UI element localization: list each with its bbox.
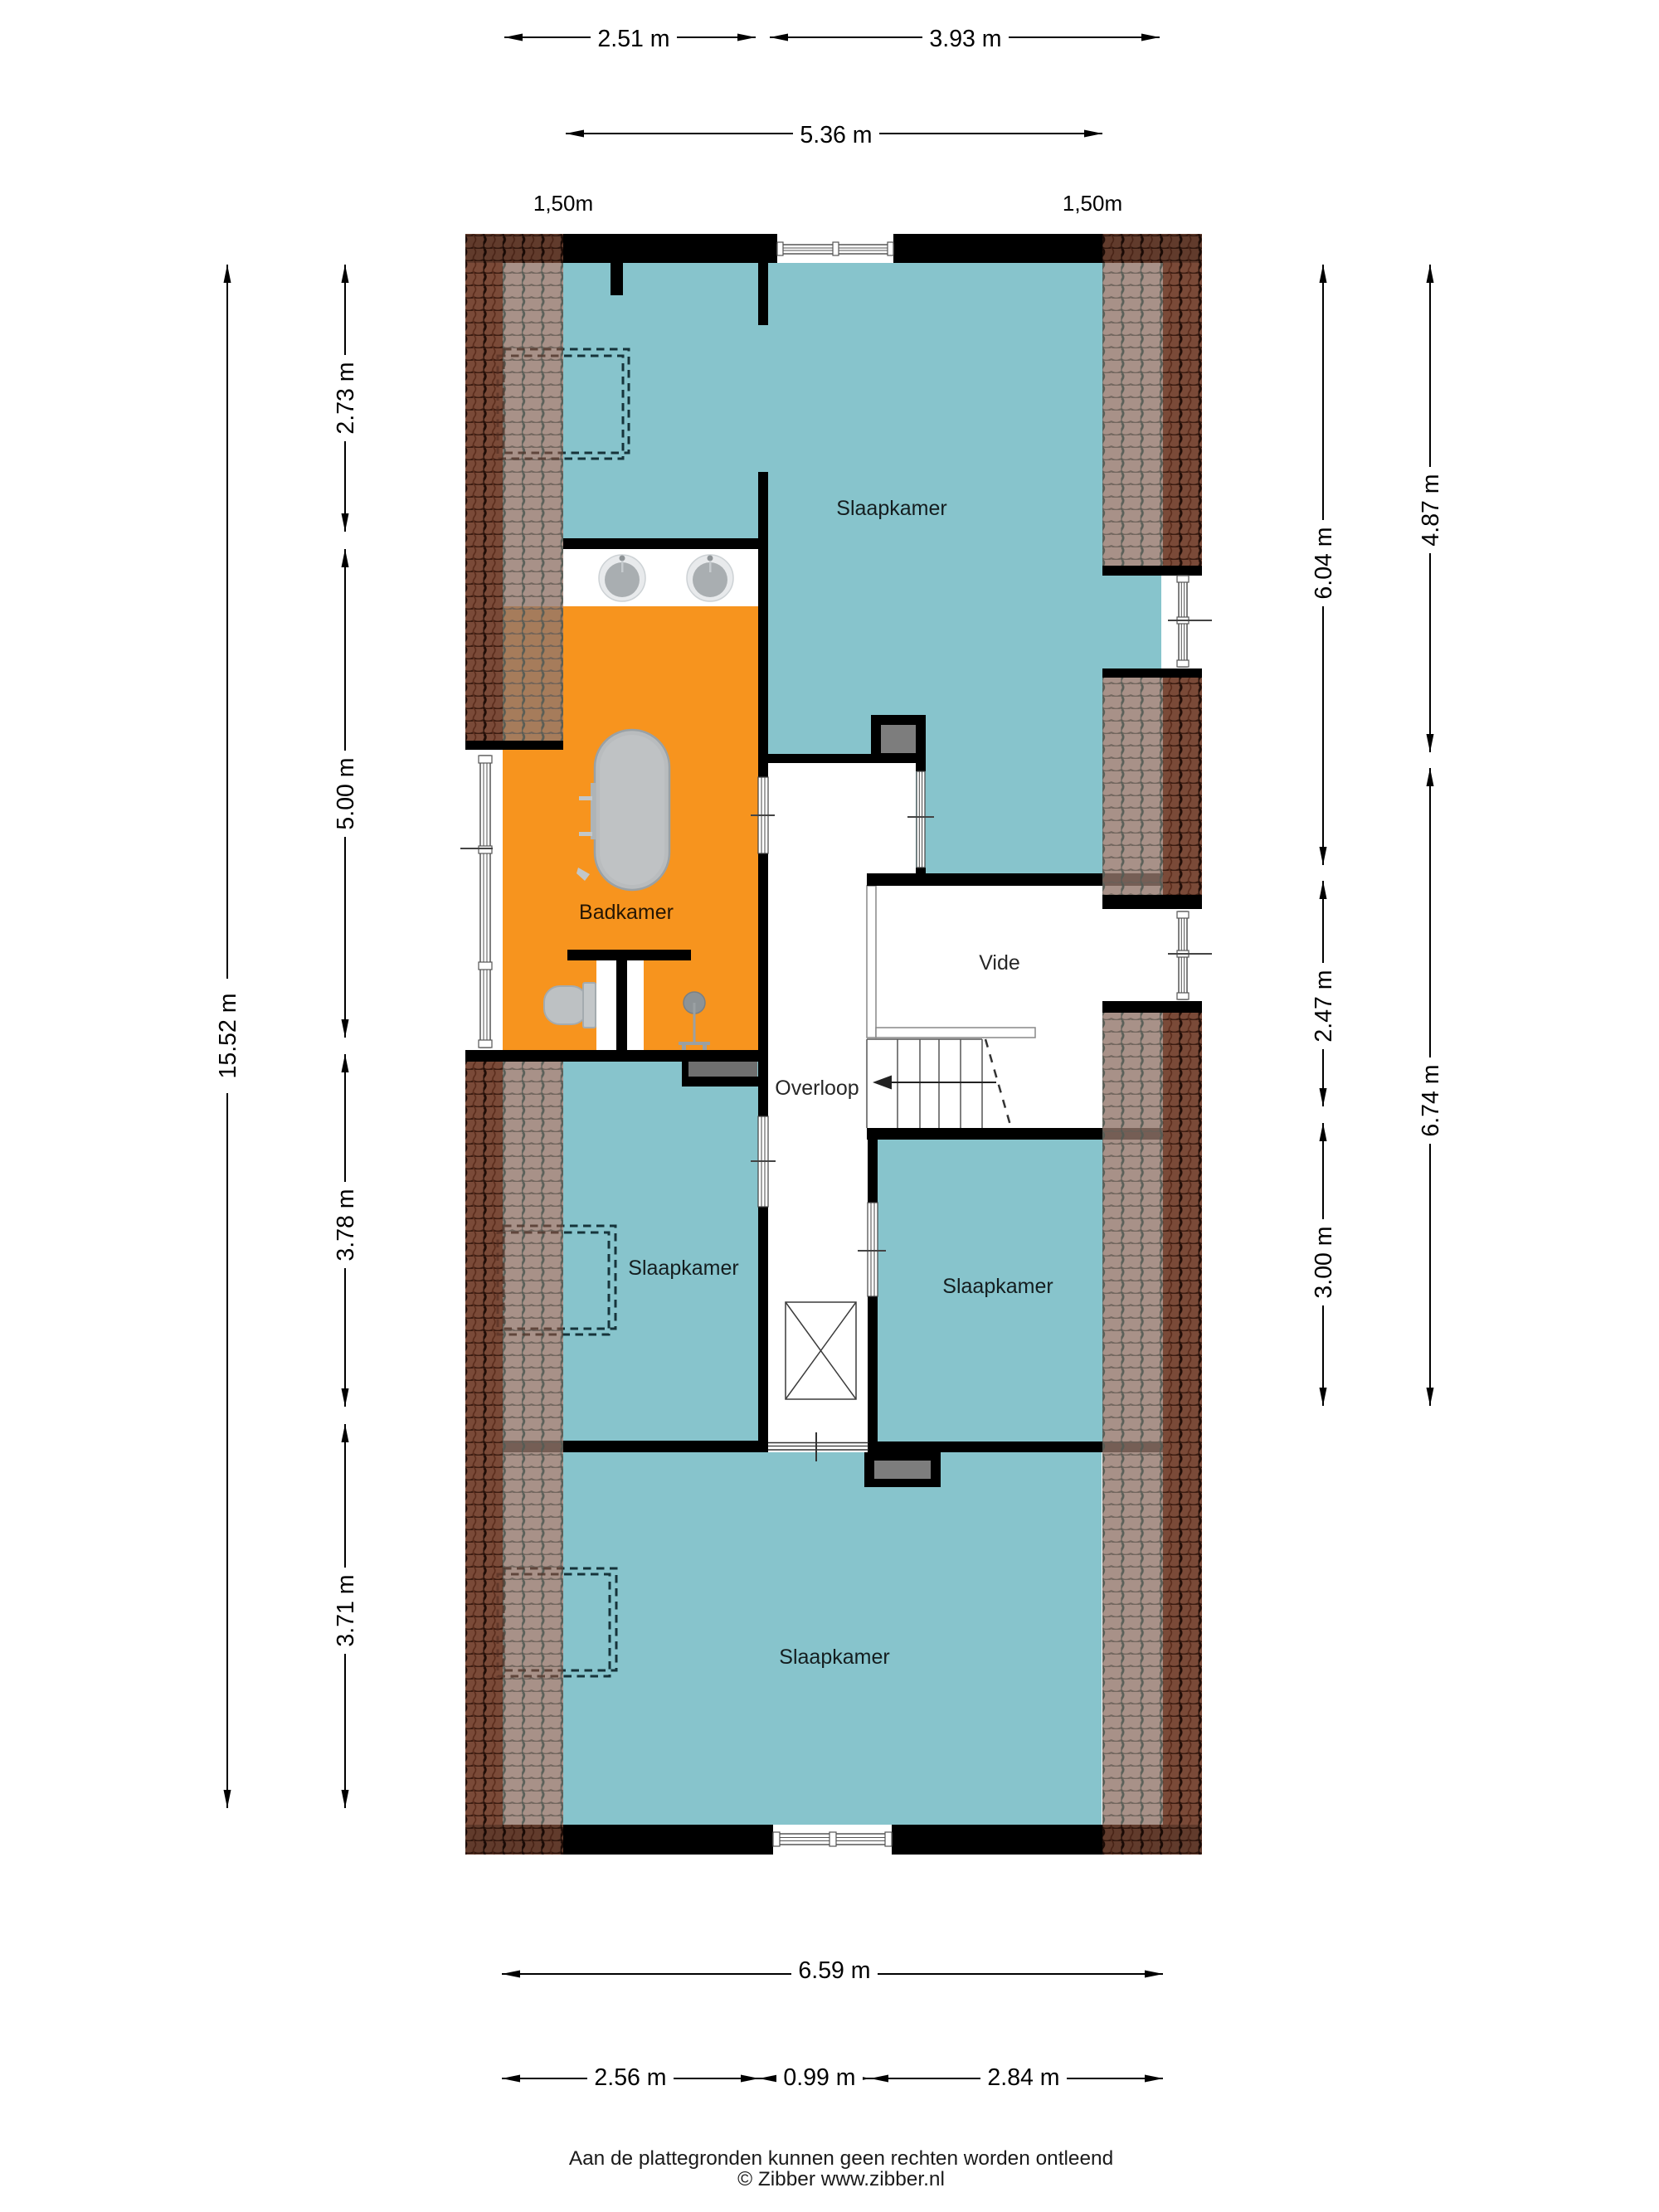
svg-text:1,50m: 1,50m xyxy=(533,191,593,216)
svg-text:2.56 m: 2.56 m xyxy=(594,2064,666,2091)
svg-text:6.74 m: 6.74 m xyxy=(1418,1064,1444,1136)
svg-text:15.52 m: 15.52 m xyxy=(215,994,241,1079)
svg-text:Slaapkamer: Slaapkamer xyxy=(942,1275,1053,1298)
svg-text:Vide: Vide xyxy=(979,951,1020,975)
svg-text:3.00 m: 3.00 m xyxy=(1311,1226,1337,1298)
svg-text:© Zibber www.zibber.nl: © Zibber www.zibber.nl xyxy=(737,2168,945,2190)
svg-text:Aan de plattegronden kunnen ge: Aan de plattegronden kunnen geen rechten… xyxy=(569,2147,1113,2170)
svg-text:3.71 m: 3.71 m xyxy=(333,1574,359,1646)
svg-text:1,50m: 1,50m xyxy=(1063,191,1122,216)
svg-text:Slaapkamer: Slaapkamer xyxy=(779,1646,889,1669)
svg-text:6.59 m: 6.59 m xyxy=(798,1957,870,1984)
svg-text:4.87 m: 4.87 m xyxy=(1418,474,1444,546)
svg-text:Slaapkamer: Slaapkamer xyxy=(836,497,946,520)
svg-text:2.51 m: 2.51 m xyxy=(597,26,669,52)
svg-text:0.99 m: 0.99 m xyxy=(783,2064,855,2091)
svg-text:3.78 m: 3.78 m xyxy=(333,1189,359,1261)
svg-text:Overloop: Overloop xyxy=(775,1077,859,1100)
svg-text:Slaapkamer: Slaapkamer xyxy=(628,1257,738,1280)
svg-text:3.93 m: 3.93 m xyxy=(929,26,1001,52)
svg-text:5.36 m: 5.36 m xyxy=(800,122,872,148)
svg-text:2.47 m: 2.47 m xyxy=(1311,970,1337,1042)
svg-text:2.84 m: 2.84 m xyxy=(987,2064,1059,2091)
svg-text:Badkamer: Badkamer xyxy=(579,901,674,924)
svg-text:5.00 m: 5.00 m xyxy=(333,757,359,829)
svg-text:6.04 m: 6.04 m xyxy=(1311,527,1337,599)
svg-text:2.73 m: 2.73 m xyxy=(333,362,359,434)
